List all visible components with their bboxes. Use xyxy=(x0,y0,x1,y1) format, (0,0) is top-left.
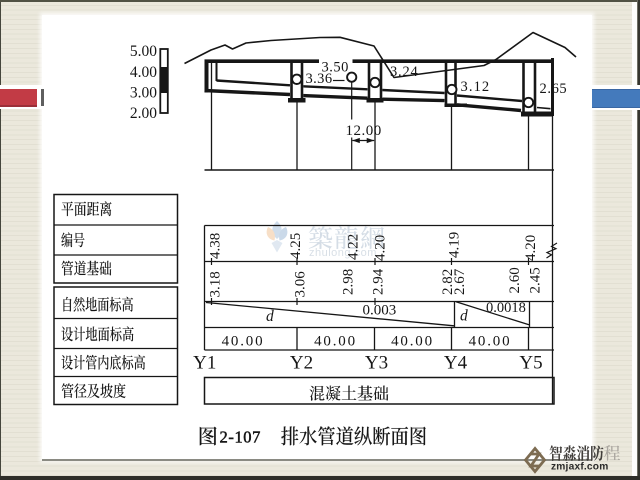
svg-text:Y1: Y1 xyxy=(193,353,216,374)
svg-text:4.20: 4.20 xyxy=(523,235,539,261)
svg-text:4.20: 4.20 xyxy=(372,235,388,261)
svg-text:2-107: 2-107 xyxy=(220,428,262,447)
svg-text:d: d xyxy=(266,308,274,325)
svg-text:Y5: Y5 xyxy=(519,353,542,374)
svg-text:3.18: 3.18 xyxy=(207,271,223,297)
svg-text:40.00: 40.00 xyxy=(222,334,265,350)
svg-text:zmjaxf.com: zmjaxf.com xyxy=(551,462,608,473)
svg-text:2.45: 2.45 xyxy=(527,267,543,293)
svg-text:40.00: 40.00 xyxy=(469,334,512,350)
svg-text:3.06: 3.06 xyxy=(292,271,308,298)
svg-text:40.00: 40.00 xyxy=(314,334,357,350)
svg-text:2.65: 2.65 xyxy=(540,81,568,97)
svg-text:Y2: Y2 xyxy=(290,353,313,374)
svg-text:zhulong.com: zhulong.com xyxy=(309,247,377,259)
svg-text:Y3: Y3 xyxy=(365,353,388,374)
svg-text:2.94: 2.94 xyxy=(370,268,386,295)
svg-text:3.12: 3.12 xyxy=(461,79,491,95)
svg-text:d: d xyxy=(460,308,468,325)
svg-text:12.00: 12.00 xyxy=(346,123,382,139)
svg-text:2.98: 2.98 xyxy=(340,269,356,295)
svg-text:4.22: 4.22 xyxy=(345,234,361,260)
svg-text:3.00: 3.00 xyxy=(130,84,157,101)
svg-text:0.0018: 0.0018 xyxy=(486,300,526,316)
svg-text:Y4: Y4 xyxy=(444,353,468,374)
svg-text:2.67: 2.67 xyxy=(452,268,468,295)
svg-text:4.00: 4.00 xyxy=(130,64,157,81)
svg-text:0.003: 0.003 xyxy=(363,303,397,319)
svg-text:2.00: 2.00 xyxy=(130,105,157,122)
svg-text:4.38: 4.38 xyxy=(207,233,223,259)
svg-text:2.60: 2.60 xyxy=(507,267,523,293)
svg-text:3.24: 3.24 xyxy=(390,64,419,80)
svg-text:3.36: 3.36 xyxy=(306,71,333,87)
svg-text:40.00: 40.00 xyxy=(391,334,434,350)
svg-text:4.19: 4.19 xyxy=(446,232,462,258)
svg-text:4.25: 4.25 xyxy=(288,233,304,259)
svg-text:5.00: 5.00 xyxy=(130,43,157,60)
